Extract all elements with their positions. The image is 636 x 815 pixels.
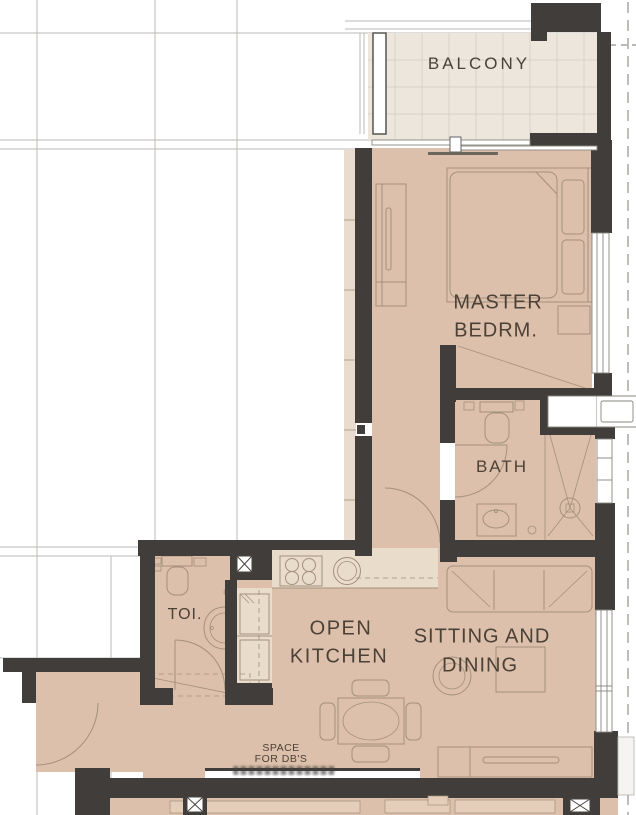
living-window [596,610,612,732]
kitchen-label-line2: KITCHEN [290,646,388,669]
ac-ledge-niche [548,396,636,427]
neighbor-column-marker-x1 [183,794,207,815]
toi-label: TOI. [168,606,203,624]
floor-plan: BALCONY MASTER BEDRM. BATH TOI. OPEN KIT… [0,0,636,815]
master-bedroom-label-line1: MASTER [453,292,542,315]
bedroom-window [592,233,609,373]
kitchen-label-line1: OPEN [310,618,373,641]
balcony-label: BALCONY [428,54,530,74]
outside-strip [344,150,356,545]
neighbor-column-marker-x2 [563,796,600,815]
bath-window [597,439,612,503]
bath-label: BATH [476,457,528,477]
corridor-floor [372,390,440,560]
sitting-dining-label-line1: SITTING AND [414,626,551,649]
entrance-floor [36,672,143,772]
column-marker-x [237,556,252,572]
db-space-label-line2: FOR DB'S [255,753,308,765]
neighbor-window-sill [618,737,634,795]
floor-plan-drawing [0,0,636,815]
master-bedroom-label-line2: BEDRM. [454,320,538,343]
obscured-text [233,766,335,775]
balcony-railing [373,33,386,134]
sitting-dining-label-line2: DINING [442,655,518,678]
